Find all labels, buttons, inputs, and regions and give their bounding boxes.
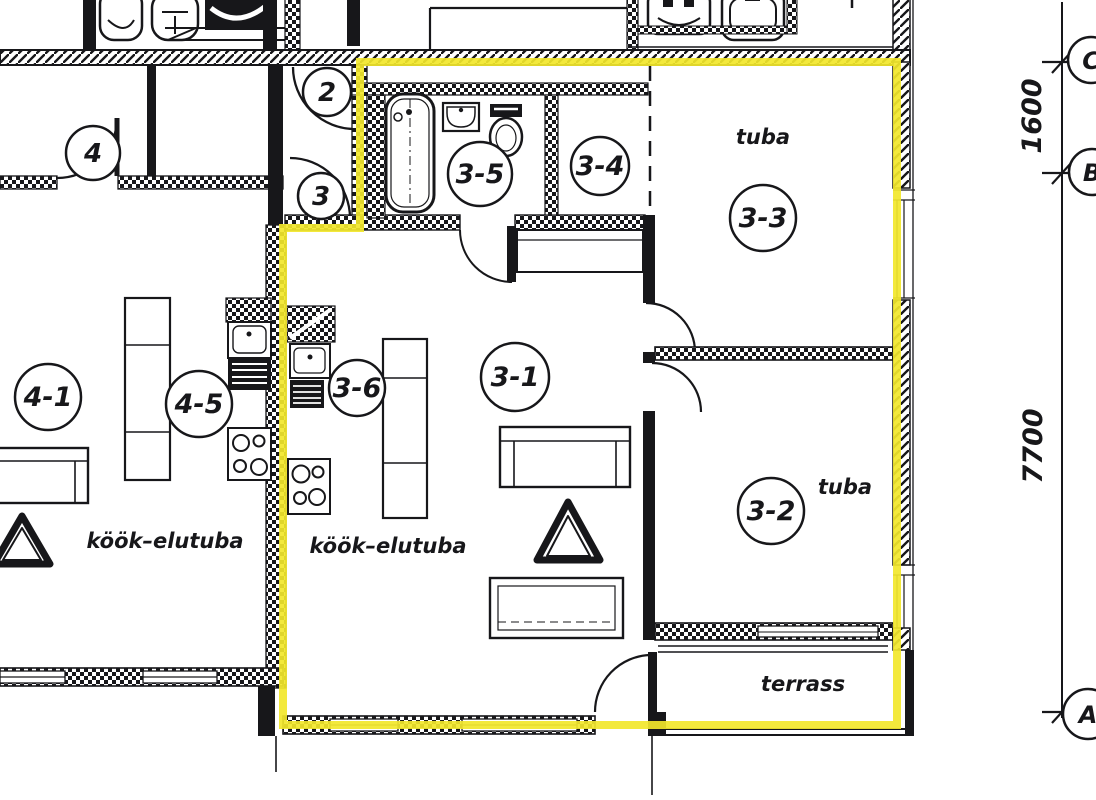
floor-plan-scan: 4 2 3 4-1 4-5 3-1 3-6 3-5 3-4 3-3 3-2 tu… xyxy=(0,0,1096,800)
wall-insulated xyxy=(545,95,558,215)
appliance xyxy=(228,358,271,390)
door-number-4: 4 xyxy=(83,139,102,169)
door-leaf xyxy=(648,652,657,714)
room-number-3-1: 3-1 xyxy=(491,362,540,393)
sink-drain xyxy=(247,332,252,337)
door-arc xyxy=(460,230,512,282)
washbasin-tap xyxy=(684,0,694,7)
apartment-3-kitchen xyxy=(287,306,630,638)
wall-stub xyxy=(83,0,96,52)
grid-letter-b: B xyxy=(1083,159,1096,187)
toilet-tank xyxy=(490,104,522,117)
room-number-3-2: 3-2 xyxy=(747,496,796,527)
dimension-value-1600: 1600 xyxy=(1017,78,1048,153)
wall-insulated xyxy=(787,0,797,34)
door-arc xyxy=(595,655,650,712)
washbasin-tap xyxy=(663,0,673,7)
wall-insulated xyxy=(352,83,648,95)
room-label-tuba-bottom: tuba xyxy=(818,475,872,499)
room-number-3-5: 3-5 xyxy=(456,159,505,190)
room-number-3-3: 3-3 xyxy=(739,203,788,234)
wall xyxy=(515,215,645,230)
floor-plan-drawing: 4 2 3 4-1 4-5 3-1 3-6 3-5 3-4 3-3 3-2 tu… xyxy=(0,0,1096,800)
toilet-icon xyxy=(100,0,142,40)
door-number-3: 3 xyxy=(312,182,330,212)
wall-insulated xyxy=(0,176,57,189)
cabinet xyxy=(383,339,427,518)
sink-drain xyxy=(308,355,313,360)
wall xyxy=(643,352,655,363)
wall xyxy=(643,411,655,640)
sofa xyxy=(500,427,630,487)
door-arc xyxy=(646,303,695,352)
room-number-3-4: 3-4 xyxy=(576,151,625,182)
wall-stub xyxy=(258,686,275,736)
washbasin-tap xyxy=(459,108,463,112)
wall-stub xyxy=(263,0,277,52)
wall-party xyxy=(268,65,283,225)
wall-between-bedrooms xyxy=(655,347,893,360)
dimension-annotations xyxy=(1042,2,1096,739)
wall-insulated xyxy=(118,176,283,189)
counter xyxy=(226,298,271,322)
door-number-2: 2 xyxy=(318,78,336,108)
room-label-terrace: terrass xyxy=(761,672,845,696)
room-outline xyxy=(430,8,630,50)
wall-insulated xyxy=(285,0,300,52)
terrace-top-edge xyxy=(658,646,888,652)
wall xyxy=(147,65,156,177)
room-label-apt3-living: köök–elutuba xyxy=(309,534,466,558)
wall-insulated xyxy=(627,0,638,52)
wall-exterior xyxy=(893,0,910,52)
terrace-bottom-edge xyxy=(655,729,913,735)
room-number-3-6: 3-6 xyxy=(333,373,382,404)
stove xyxy=(288,459,330,514)
bath-block xyxy=(205,0,273,30)
wall-insulated xyxy=(367,95,385,218)
room-number-4-5: 4-5 xyxy=(174,389,224,420)
wall-stub xyxy=(347,0,360,46)
door-leaf xyxy=(507,226,516,282)
grid-letter-a: A xyxy=(1077,701,1096,729)
room-label-tuba-top: tuba xyxy=(736,125,790,149)
sill-band xyxy=(638,26,790,34)
bathtub-tap xyxy=(406,109,412,115)
table-triangle xyxy=(537,502,600,560)
room-label-apt4-living: köök–elutuba xyxy=(86,529,243,553)
wall xyxy=(643,215,655,303)
dimension-value-7700: 7700 xyxy=(1018,408,1049,483)
upper-apartment-strip xyxy=(83,0,910,52)
door-arc xyxy=(652,363,701,412)
closet xyxy=(517,230,643,272)
room-number-4-1: 4-1 xyxy=(23,382,73,413)
cabinet xyxy=(125,298,170,480)
chest xyxy=(490,578,623,638)
toilet-button xyxy=(745,0,760,1)
grid-letter-c: C xyxy=(1082,47,1096,75)
table-triangle xyxy=(0,516,50,564)
